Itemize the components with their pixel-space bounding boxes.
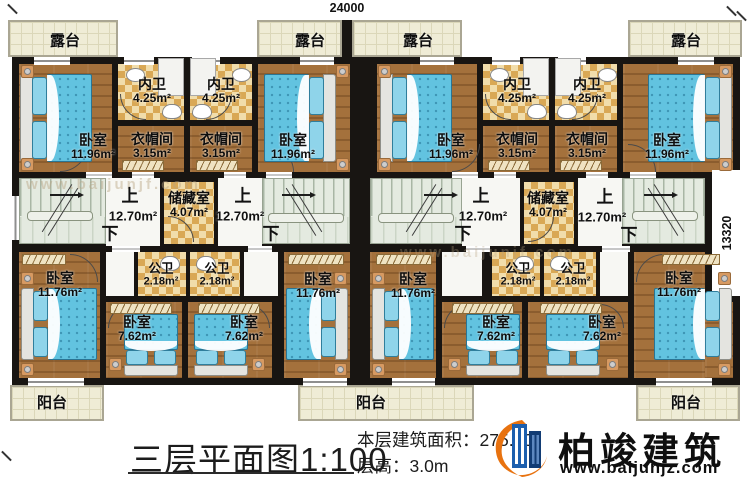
nightstand [336,65,349,78]
door-opening [586,172,608,178]
label-bedroom: 卧室7.62m² [477,314,515,344]
closet-hatch [288,254,344,265]
nightstand [719,158,732,171]
label-bedroom: 卧室11.76m² [391,271,435,301]
stair-direction-arrow [644,194,674,196]
label-stairs-down: 下 [102,220,119,245]
dimension-tick [7,4,18,15]
label-balcony: 阳台 [356,394,386,411]
nightstand [719,65,732,78]
label-public-bath: 公卫2.18m² [144,261,179,288]
door-opening [630,172,656,178]
label-stairs-up: 上 [122,182,139,207]
label-inner-bath: 内卫4.25m² [498,76,536,106]
stair-direction-arrow [424,194,454,196]
window [124,57,154,65]
nightstand [334,363,347,376]
label-inner-bath: 内卫4.25m² [568,76,606,106]
nightstand [109,358,122,371]
label-stairs-down: 下 [263,220,280,245]
label-stairs-up: 上 [597,183,614,208]
nightstand [718,363,731,376]
hall-bottom-b [244,252,278,296]
label-balcony: 阳台 [37,394,67,411]
nightstand [252,358,265,371]
dimension-top-width: 24000 [330,1,365,15]
nightstand [718,272,731,285]
closet-hatch [110,303,172,314]
closet-hatch [488,160,530,171]
nightstand [336,158,349,171]
nightstand [21,363,34,376]
nightstand [606,358,619,371]
window [492,57,520,65]
window [300,57,334,65]
door-opening [452,172,478,178]
floor-height-text: 层高：3.0m [357,453,448,478]
label-bedroom: 卧室7.62m² [225,314,263,344]
closet-hatch [196,160,238,171]
label-bedroom: 卧室7.62m² [583,314,621,344]
label-terrace: 露台 [403,32,433,49]
label-cloakroom: 衣帽间3.15m² [131,131,173,161]
label-terrace: 露台 [295,32,325,49]
title-underline [128,472,354,474]
closet-hatch [22,254,66,265]
closet-hatch [122,160,164,171]
balcony-door [656,378,712,386]
label-cloakroom: 衣帽间3.15m² [496,131,538,161]
brand-website: www.baijunjz.com [560,459,718,478]
label-inner-bath: 内卫4.25m² [133,76,171,106]
label-public-bath: 公卫2.18m² [501,261,536,288]
label-terrace: 露台 [50,32,80,49]
closet-hatch [662,254,720,265]
label-bedroom: 卧室11.76m² [296,271,340,301]
label-inner-bath: 内卫4.25m² [202,76,240,106]
label-bedroom: 卧室11.96m² [271,132,315,162]
stair-direction-arrow [282,194,312,196]
nightstand [378,158,391,171]
floor-plan: 24000 13320 [0,0,750,481]
balcony-door [392,378,435,386]
door-opening [112,246,140,252]
nightstand [21,158,34,171]
label-stairs-up: 上 [473,182,490,207]
label-bedroom: 卧室11.76m² [657,270,701,300]
nightstand [21,65,34,78]
label-stairs-up: 上 [235,182,252,207]
label-cloakroom: 衣帽间3.15m² [200,131,242,161]
terrace-divider-wall [342,20,352,57]
label-bedroom: 卧室11.76m² [38,270,82,300]
window [34,57,70,65]
door-opening [494,172,516,178]
label-public-bath: 公卫2.18m² [556,261,591,288]
watermark-text: www.baijunjf.com [400,244,575,261]
label-bedroom: 卧室11.96m² [429,132,473,162]
door-opening [224,172,246,178]
hall-bottom-a [106,252,134,296]
label-bedroom: 卧室11.96m² [71,132,115,162]
brand-logo-icon [488,416,554,478]
window [678,57,714,65]
dimension-tick [726,6,737,17]
window [12,196,19,240]
nightstand [21,272,34,285]
door-opening [602,246,630,252]
label-storage: 储藏室4.07m² [168,190,210,220]
stair-direction-arrow [50,194,80,196]
toilet [192,104,212,119]
label-cloakroom: 衣帽间3.15m² [566,131,608,161]
label-bedroom: 卧室11.96m² [645,132,689,162]
label-public-bath: 公卫2.18m² [200,261,235,288]
dimension-right-height: 13320 [720,216,734,251]
toilet [527,104,547,119]
balcony-door [303,378,347,386]
toilet [557,104,577,119]
label-bedroom: 卧室7.62m² [118,314,156,344]
closet-hatch [198,303,260,314]
nightstand [448,358,461,371]
label-hall-area: 12.70m² [578,210,626,225]
balcony-door [28,378,84,386]
closet-hatch [540,303,602,314]
nightstand [372,272,385,285]
nightstand [378,65,391,78]
dimension-tick [1,451,12,462]
door-opening [266,172,292,178]
label-balcony: 阳台 [671,394,701,411]
door-opening [248,246,272,252]
closet-hatch [452,303,514,314]
closet-hatch [560,160,602,171]
label-stairs-down: 下 [455,220,472,245]
nightstand [372,363,385,376]
label-hall-area: 12.70m² [216,209,264,224]
toilet [162,104,182,119]
label-storage: 储藏室4.07m² [527,190,569,220]
label-terrace: 露台 [671,32,701,49]
window [420,57,454,65]
staircase-3 [370,178,462,244]
hall-bottom-d [600,252,628,296]
label-stairs-down: 下 [621,221,638,246]
